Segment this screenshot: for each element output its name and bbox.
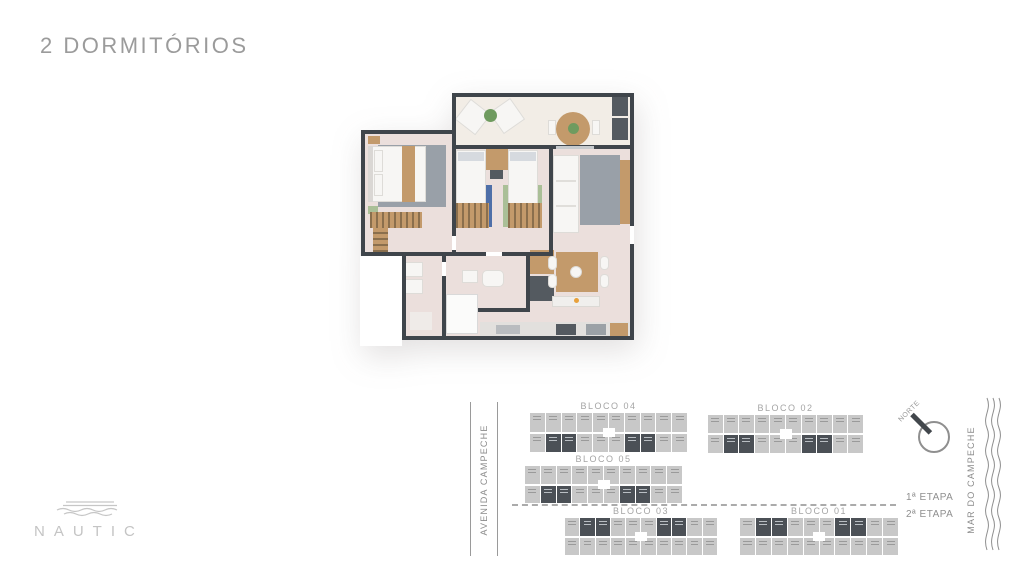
stair-notch — [598, 480, 610, 489]
unit-cell — [620, 466, 635, 484]
unit-cell — [708, 435, 723, 453]
unit-cell — [641, 413, 656, 432]
unit-cell — [703, 538, 717, 556]
unit-cell — [835, 538, 850, 556]
stair-notch — [603, 428, 615, 437]
unit-cell — [596, 538, 610, 556]
unit-cell — [657, 538, 671, 556]
unit-cell — [565, 518, 579, 536]
unit-cell — [636, 466, 651, 484]
unit-cell — [651, 486, 666, 504]
unit-cell — [541, 466, 556, 484]
unit-cell — [788, 538, 803, 556]
stair-notch — [813, 532, 825, 541]
nautic-logo: NAUTIC — [34, 500, 164, 540]
logo-waves-icon — [54, 500, 126, 518]
unit-2dorm-highlight — [596, 518, 610, 536]
road-line — [497, 402, 498, 556]
unit-cell — [740, 518, 755, 536]
unit-cell — [708, 415, 723, 433]
unit-cell — [755, 415, 770, 433]
unit-cell — [565, 538, 579, 556]
unit-cell — [580, 538, 594, 556]
unit-cell — [611, 538, 625, 556]
block-label: BLOCO 05 — [525, 454, 682, 464]
unit-2dorm-highlight — [817, 435, 832, 453]
unit-2dorm-highlight — [636, 486, 651, 504]
building-bloco-04 — [530, 413, 687, 452]
unit-2dorm-highlight — [739, 435, 754, 453]
block-label: BLOCO 02 — [708, 403, 863, 413]
stair-notch — [780, 429, 792, 438]
unit-cell — [802, 415, 817, 433]
stage-label-2: 2ª ETAPA — [906, 509, 953, 520]
unit-cell — [833, 415, 848, 433]
unit-cell — [525, 486, 540, 504]
unit-cell — [867, 538, 882, 556]
unit-2dorm-highlight — [657, 518, 671, 536]
unit-cell — [703, 518, 717, 536]
unit-cell — [672, 538, 686, 556]
logo-text: NAUTIC — [34, 523, 164, 540]
unit-2dorm-highlight — [835, 518, 850, 536]
unit-2dorm-highlight — [625, 434, 640, 453]
unit-cell — [672, 434, 687, 453]
unit-2dorm-highlight — [557, 486, 572, 504]
sea-waves-icon — [982, 396, 1008, 564]
unit-cell — [525, 466, 540, 484]
unit-cell — [530, 413, 545, 432]
unit-cell — [672, 413, 687, 432]
unit-2dorm-highlight — [772, 518, 787, 536]
unit-cell — [883, 538, 898, 556]
unit-cell — [739, 415, 754, 433]
unit-cell — [577, 434, 592, 453]
unit-cell — [611, 518, 625, 536]
unit-cell — [833, 435, 848, 453]
building-bloco-01 — [740, 518, 898, 555]
unit-cell — [572, 466, 587, 484]
street-label-mar: MAR DO CAMPECHE — [966, 426, 976, 534]
unit-cell — [755, 435, 770, 453]
unit-cell — [656, 434, 671, 453]
unit-cell — [577, 413, 592, 432]
unit-cell — [848, 415, 863, 433]
unit-cell — [687, 518, 701, 536]
unit-cell — [867, 518, 882, 536]
unit-cell — [817, 415, 832, 433]
unit-cell — [788, 518, 803, 536]
block-label: BLOCO 04 — [530, 401, 687, 411]
unit-cell — [724, 415, 739, 433]
unit-2dorm-highlight — [620, 486, 635, 504]
unit-2dorm-highlight — [851, 518, 866, 536]
unit-cell — [562, 413, 577, 432]
unit-2dorm-highlight — [724, 435, 739, 453]
block-label: BLOCO 01 — [740, 506, 898, 516]
road-line — [470, 402, 471, 556]
unit-cell — [656, 413, 671, 432]
block-label: BLOCO 03 — [565, 506, 717, 516]
unit-cell — [740, 538, 755, 556]
unit-cell — [883, 518, 898, 536]
north-compass: NORTE — [900, 400, 964, 460]
unit-cell — [651, 466, 666, 484]
unit-cell — [667, 466, 682, 484]
street-label-avenida: AVENIDA CAMPECHE — [479, 424, 489, 535]
unit-2dorm-highlight — [641, 434, 656, 453]
building-bloco-03 — [565, 518, 717, 555]
unit-2dorm-highlight — [756, 518, 771, 536]
unit-2dorm-highlight — [580, 518, 594, 536]
unit-2dorm-highlight — [562, 434, 577, 453]
unit-cell — [772, 538, 787, 556]
unit-cell — [687, 538, 701, 556]
unit-2dorm-highlight — [546, 434, 561, 453]
unit-cell — [530, 434, 545, 453]
unit-cell — [546, 413, 561, 432]
unit-cell — [667, 486, 682, 504]
unit-cell — [557, 466, 572, 484]
building-bloco-05 — [525, 466, 682, 503]
unit-cell — [848, 435, 863, 453]
unit-2dorm-highlight — [541, 486, 556, 504]
unit-cell — [851, 538, 866, 556]
unit-cell — [572, 486, 587, 504]
site-plan: AVENIDA CAMPECHE MAR DO CAMPECHE NORTE 1… — [0, 0, 1024, 572]
unit-cell — [756, 538, 771, 556]
unit-2dorm-highlight — [802, 435, 817, 453]
stage-label-1: 1ª ETAPA — [906, 492, 953, 503]
unit-2dorm-highlight — [672, 518, 686, 536]
presentation-slide: 2 DORMITÓRIOS — [0, 0, 1024, 572]
stair-notch — [635, 532, 647, 541]
building-bloco-02 — [708, 415, 863, 453]
unit-cell — [625, 413, 640, 432]
